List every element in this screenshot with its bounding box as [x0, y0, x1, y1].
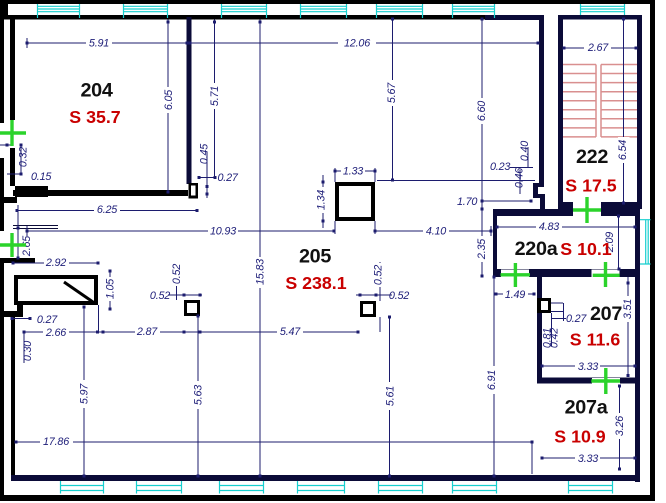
svg-text:1.33: 1.33 [343, 166, 363, 178]
svg-text:5.97: 5.97 [79, 383, 91, 404]
svg-text:0.46: 0.46 [514, 168, 526, 188]
svg-text:0.40: 0.40 [519, 141, 531, 161]
svg-text:1.34: 1.34 [316, 190, 328, 210]
svg-text:17.86: 17.86 [43, 436, 69, 448]
svg-text:2.66: 2.66 [45, 327, 66, 339]
svg-text:4.10: 4.10 [426, 226, 446, 238]
svg-text:0.23: 0.23 [490, 161, 510, 173]
svg-text:0.52: 0.52 [389, 290, 409, 302]
svg-text:6.54: 6.54 [617, 140, 629, 160]
svg-text:3.33: 3.33 [578, 361, 598, 373]
svg-text:S 10.1: S 10.1 [560, 239, 612, 259]
svg-text:0.30: 0.30 [22, 341, 34, 361]
svg-text:0.52: 0.52 [150, 290, 170, 302]
svg-text:S 238.1: S 238.1 [285, 273, 346, 293]
svg-text:0.42: 0.42 [549, 328, 561, 348]
svg-text:3.51: 3.51 [622, 299, 634, 319]
svg-text:205: 205 [299, 246, 331, 268]
svg-text:0.32: 0.32 [18, 147, 30, 167]
svg-text:0.45: 0.45 [199, 143, 211, 164]
svg-text:6.05: 6.05 [163, 89, 175, 110]
svg-text:5.71: 5.71 [209, 86, 221, 106]
svg-text:S 11.6: S 11.6 [570, 330, 621, 350]
svg-text:6.91: 6.91 [486, 370, 498, 390]
svg-text:2.87: 2.87 [136, 326, 158, 338]
svg-text:15.83: 15.83 [255, 259, 267, 285]
svg-text:S 35.7: S 35.7 [69, 107, 121, 127]
svg-text:220a: 220a [515, 238, 559, 260]
svg-text:2.67: 2.67 [587, 42, 609, 54]
svg-text:3.33: 3.33 [578, 453, 598, 465]
svg-text:S 10.9: S 10.9 [554, 427, 606, 447]
svg-text:1.70: 1.70 [457, 196, 477, 208]
svg-text:0.27: 0.27 [37, 314, 58, 326]
svg-text:1.05: 1.05 [105, 278, 117, 299]
svg-text:6.25: 6.25 [97, 204, 118, 216]
svg-text:12.06: 12.06 [344, 38, 370, 50]
svg-text:10.93: 10.93 [210, 226, 236, 238]
svg-text:6.60: 6.60 [476, 101, 488, 121]
svg-text:207: 207 [590, 303, 622, 325]
svg-text:3.26: 3.26 [614, 416, 626, 436]
svg-text:1.49: 1.49 [505, 289, 525, 301]
svg-text:222: 222 [576, 146, 608, 168]
svg-text:207a: 207a [565, 397, 609, 419]
svg-text:S 17.5: S 17.5 [565, 176, 617, 196]
svg-text:5.91: 5.91 [89, 38, 109, 50]
svg-text:204: 204 [80, 80, 112, 102]
svg-text:5.47: 5.47 [280, 326, 301, 338]
svg-text:5.67: 5.67 [386, 82, 398, 103]
svg-text:0.52: 0.52 [373, 265, 385, 285]
svg-text:5.63: 5.63 [193, 385, 205, 405]
svg-text:0.15: 0.15 [31, 171, 52, 183]
svg-text:0.52: 0.52 [171, 264, 183, 284]
svg-text:4.83: 4.83 [539, 221, 559, 233]
svg-text:2.35: 2.35 [476, 238, 488, 260]
svg-text:0.27: 0.27 [566, 313, 587, 325]
svg-text:5.61: 5.61 [385, 386, 397, 406]
svg-text:0.27: 0.27 [218, 172, 239, 184]
svg-text:2.92: 2.92 [45, 257, 66, 269]
